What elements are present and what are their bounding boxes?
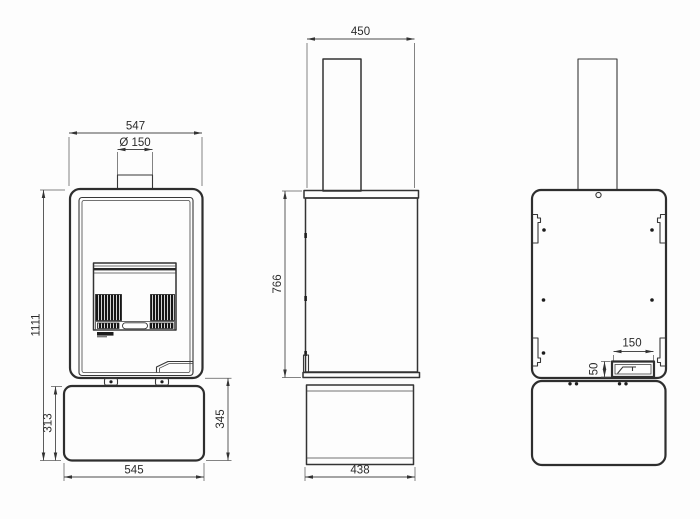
bracket-notch-top-left xyxy=(533,215,541,244)
dim-lower-section-height: 345 xyxy=(205,378,232,460)
stove-body-side xyxy=(306,198,418,372)
bracket-notch-bottom-right xyxy=(658,338,666,366)
dim-air-inlet-width: 150 xyxy=(614,338,654,362)
hinge-pin-top xyxy=(304,233,307,238)
dim-front-width: 547 xyxy=(69,121,202,187)
chimney-pipe-back xyxy=(578,59,617,191)
brand-label-underline xyxy=(97,336,107,337)
pedestal-clip-right xyxy=(156,378,169,385)
dim-body-height: 766 xyxy=(272,191,302,378)
drawing-canvas: 547 Ø 150 xyxy=(0,0,700,519)
side-view: 450 766 xyxy=(272,26,420,481)
dim-air-inlet-height: 50 xyxy=(589,362,611,378)
stove-body-back xyxy=(532,190,666,378)
stove-body-front xyxy=(70,189,203,378)
door-glass xyxy=(82,201,190,373)
dim-pedestal-height: 313 xyxy=(43,387,63,461)
dim-flue-diameter-label: Ø 150 xyxy=(119,137,150,149)
back-view: 150 50 xyxy=(532,59,666,465)
bracket-notch-top-right xyxy=(658,215,666,244)
fastener-hole xyxy=(575,382,578,385)
air-inlet-opening xyxy=(612,362,654,378)
dim-pedestal-width: 545 xyxy=(64,463,204,481)
pedestal-side xyxy=(307,385,414,465)
dim-total-height-label: 1111 xyxy=(31,313,43,336)
burner-grille-right xyxy=(151,295,175,321)
dim-air-inlet-width-label: 150 xyxy=(622,338,641,350)
chimney-pipe-side xyxy=(323,59,361,191)
ash-lip-plate xyxy=(157,362,194,373)
screw-hole xyxy=(650,228,654,232)
dim-lower-section-height-label: 345 xyxy=(215,409,227,428)
brand-label xyxy=(97,332,114,336)
screw-hole xyxy=(542,351,546,355)
burner-top-band xyxy=(94,268,177,270)
burner-assembly xyxy=(94,263,177,337)
dim-air-inlet-height-label: 50 xyxy=(589,363,601,376)
lower-grille-left xyxy=(98,323,120,329)
pedestal-back xyxy=(532,381,666,465)
fastener-hole xyxy=(568,382,571,385)
damper-lever xyxy=(618,367,637,374)
bracket-notch-bottom-left xyxy=(533,338,541,366)
technical-drawing: 547 Ø 150 xyxy=(0,0,700,519)
dim-pedestal-depth-label: 438 xyxy=(350,465,369,477)
dim-pedestal-height-label: 313 xyxy=(43,413,55,432)
pedestal-clip-left xyxy=(105,378,118,385)
hinge-pin-middle xyxy=(304,296,307,301)
dim-flue-diameter: Ø 150 xyxy=(118,137,153,175)
rear-top-hole xyxy=(596,192,601,197)
dim-depth-label: 450 xyxy=(351,26,370,38)
dim-pedestal-depth: 438 xyxy=(305,465,415,482)
fastener-hole xyxy=(618,382,621,385)
burner-slider xyxy=(123,323,148,329)
screw-hole xyxy=(650,298,654,302)
screw-hole xyxy=(542,298,546,302)
dim-body-height-label: 766 xyxy=(272,274,284,293)
flue-collar xyxy=(118,175,153,189)
front-view: 547 Ø 150 xyxy=(31,121,232,482)
pedestal-front xyxy=(64,386,204,461)
dim-front-width-label: 547 xyxy=(126,121,145,133)
burner-grille-left xyxy=(96,295,122,321)
fastener-hole xyxy=(624,382,627,385)
screw-hole xyxy=(542,228,546,232)
lower-grille-right xyxy=(150,323,173,329)
bottom-lip-side xyxy=(303,373,420,378)
dim-pedestal-width-label: 545 xyxy=(124,465,143,477)
